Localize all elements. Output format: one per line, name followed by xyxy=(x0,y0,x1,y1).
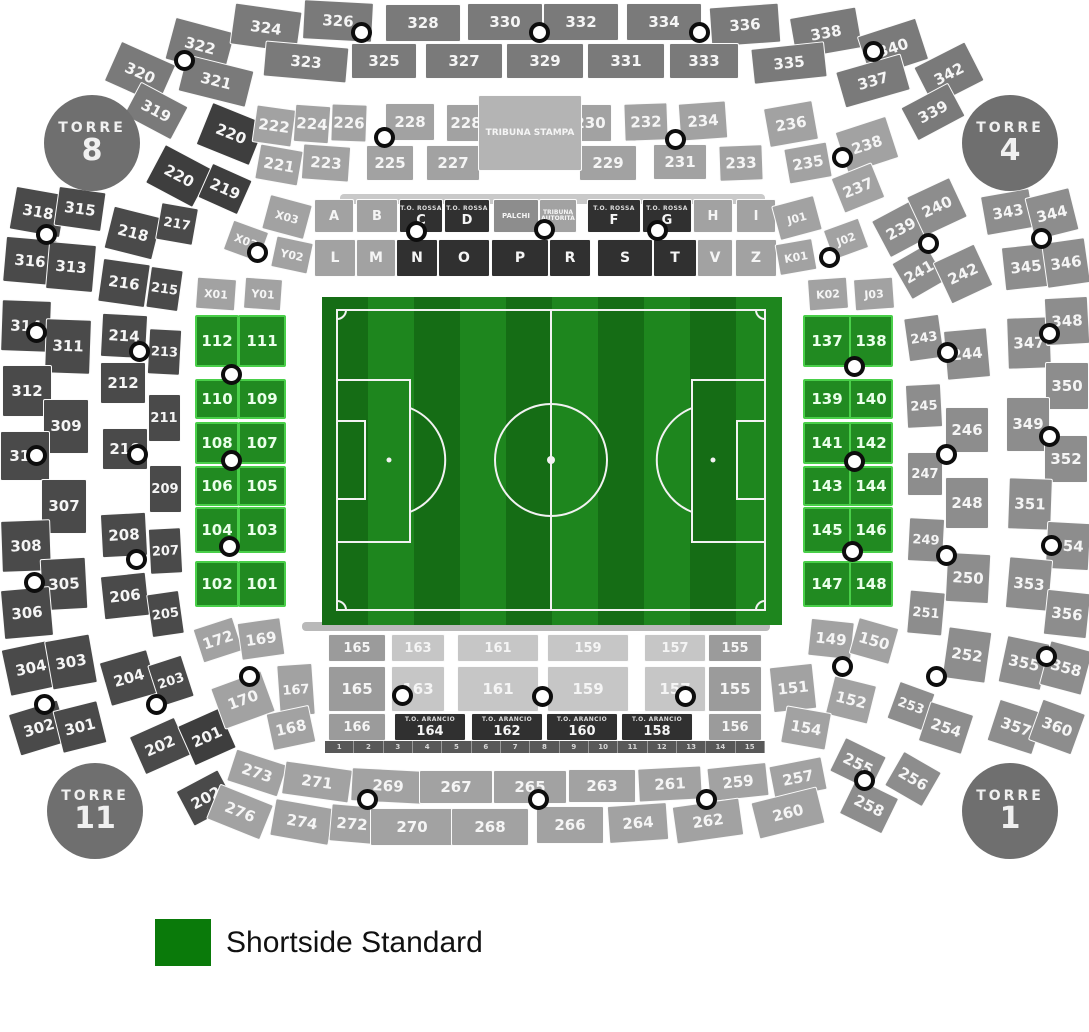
section-158[interactable]: T.O. ARANCIO158 xyxy=(621,713,693,741)
section-i[interactable]: I xyxy=(736,199,776,233)
section-229[interactable]: 229 xyxy=(579,145,637,181)
section-label: 306 xyxy=(11,604,44,622)
section-label: 242 xyxy=(946,261,981,288)
section-207[interactable]: 207 xyxy=(147,527,182,575)
section-155[interactable]: 155 xyxy=(708,666,762,712)
section-236[interactable]: 236 xyxy=(763,100,819,148)
section-label: 337 xyxy=(856,69,890,92)
section-252[interactable]: 252 xyxy=(942,626,993,684)
section-caption: T.O. ROSSA xyxy=(646,206,688,212)
section-m[interactable]: M xyxy=(356,239,396,277)
section-label: 103 xyxy=(246,523,277,538)
section-label: 311 xyxy=(52,338,84,354)
section-label: 332 xyxy=(565,15,596,30)
section-140[interactable]: 140 xyxy=(849,379,893,419)
section-152[interactable]: 152 xyxy=(825,675,877,724)
section-263[interactable]: 263 xyxy=(568,769,636,803)
section-palchi[interactable]: PALCHI xyxy=(493,199,539,233)
section-325[interactable]: 325 xyxy=(351,43,417,79)
section-label: 165 xyxy=(343,642,370,655)
section-label: 211 xyxy=(150,412,177,425)
section-label: 336 xyxy=(729,16,761,33)
section-label: 328 xyxy=(407,16,438,31)
section-y02[interactable]: Y02 xyxy=(270,235,314,274)
gate-number: 13 xyxy=(677,741,706,753)
section-169[interactable]: 169 xyxy=(237,617,286,661)
gate-marker xyxy=(529,22,550,43)
section-270[interactable]: 270 xyxy=(370,808,454,846)
tower-number: 11 xyxy=(74,804,116,834)
section-163[interactable]: 163 xyxy=(391,634,445,662)
section-301[interactable]: 301 xyxy=(52,700,107,754)
section-335[interactable]: 335 xyxy=(750,41,827,85)
section-tribuna-stampa[interactable]: TRIBUNA STAMPA xyxy=(478,95,582,171)
section-label: P xyxy=(515,251,525,265)
section-label: 352 xyxy=(1050,452,1081,467)
section-label: 148 xyxy=(855,577,886,592)
gate-marker xyxy=(1039,426,1060,447)
section-label: K01 xyxy=(783,250,808,265)
section-148[interactable]: 148 xyxy=(849,561,893,607)
section-caption: T.O. ARANCIO xyxy=(632,717,682,723)
section-109[interactable]: 109 xyxy=(238,379,286,419)
section-216[interactable]: 216 xyxy=(97,258,151,308)
gate-marker xyxy=(528,789,549,810)
gate-marker xyxy=(239,666,260,687)
gate-marker xyxy=(918,233,939,254)
section-label: 143 xyxy=(811,479,842,494)
section-303[interactable]: 303 xyxy=(44,633,98,690)
section-label: 331 xyxy=(610,54,641,69)
section-165[interactable]: 165 xyxy=(328,666,386,712)
section-label: 325 xyxy=(368,54,399,69)
section-caption: T.O. ROSSA xyxy=(446,206,488,212)
gate-marker xyxy=(844,356,865,377)
section-224[interactable]: 224 xyxy=(293,104,332,144)
section-164[interactable]: T.O. ARANCIO164 xyxy=(394,713,466,741)
section-label: D xyxy=(462,214,473,227)
section-label: 207 xyxy=(151,544,179,558)
section-label: 251 xyxy=(912,605,940,620)
gate-marker xyxy=(219,536,240,557)
section-157[interactable]: 157 xyxy=(644,666,706,712)
section-label: 141 xyxy=(811,436,842,451)
legend: Shortside Standard xyxy=(155,919,483,966)
section-label: 271 xyxy=(300,772,333,791)
section-h[interactable]: H xyxy=(693,199,733,233)
section-217[interactable]: 217 xyxy=(155,202,199,246)
gate-marker xyxy=(247,242,268,263)
section-label: 313 xyxy=(55,258,88,276)
section-label: H xyxy=(708,210,719,223)
tower-4: TORRE4 xyxy=(962,95,1058,191)
section-label: PALCHI xyxy=(502,213,530,220)
section-label: 243 xyxy=(910,330,939,347)
section-t[interactable]: T xyxy=(653,239,697,277)
section-154[interactable]: 154 xyxy=(780,705,832,750)
section-label: 233 xyxy=(725,155,757,171)
section-label: 276 xyxy=(223,799,258,825)
section-label: T xyxy=(670,251,680,265)
section-label: 356 xyxy=(1051,605,1084,623)
section-label: 235 xyxy=(791,153,824,173)
section-d[interactable]: T.O. ROSSAD xyxy=(444,199,490,233)
section-102[interactable]: 102 xyxy=(195,561,239,607)
section-label: 312 xyxy=(11,384,42,399)
section-label: 272 xyxy=(336,815,369,833)
gate-marker xyxy=(406,221,427,242)
section-139[interactable]: 139 xyxy=(803,379,851,419)
section-label: Z xyxy=(751,251,761,265)
section-a[interactable]: A xyxy=(314,199,354,233)
section-159[interactable]: 159 xyxy=(547,634,629,662)
section-351[interactable]: 351 xyxy=(1007,477,1053,531)
section-211[interactable]: 211 xyxy=(148,394,181,442)
section-label: 217 xyxy=(162,215,191,233)
gate-marker xyxy=(392,685,413,706)
section-label: 304 xyxy=(14,657,48,678)
section-221[interactable]: 221 xyxy=(254,143,304,186)
section-label: Y01 xyxy=(251,288,275,301)
section-k01[interactable]: K01 xyxy=(775,238,818,276)
section-161[interactable]: 161 xyxy=(457,634,539,662)
section-157[interactable]: 157 xyxy=(644,634,706,662)
gate-number: 9 xyxy=(560,741,589,753)
section-label: 220 xyxy=(162,162,197,190)
section-label: 302 xyxy=(22,716,56,739)
section-label: 224 xyxy=(296,115,328,132)
section-label: 353 xyxy=(1013,575,1046,593)
section-label: 157 xyxy=(661,642,688,655)
section-143[interactable]: 143 xyxy=(803,466,851,506)
gate-marker xyxy=(842,541,863,562)
section-235[interactable]: 235 xyxy=(783,141,833,184)
gate-marker xyxy=(1036,646,1057,667)
section-274[interactable]: 274 xyxy=(269,798,335,846)
section-k02[interactable]: K02 xyxy=(807,277,849,312)
section-label: 256 xyxy=(896,765,931,794)
section-label: 234 xyxy=(687,112,719,129)
section-label: 254 xyxy=(929,716,963,740)
section-160[interactable]: T.O. ARANCIO160 xyxy=(546,713,618,741)
section-label: 327 xyxy=(448,54,479,69)
section-105[interactable]: 105 xyxy=(238,466,286,506)
section-213[interactable]: 213 xyxy=(146,328,181,376)
section-212[interactable]: 212 xyxy=(100,362,146,404)
section-label: 155 xyxy=(721,642,748,655)
section-label: 253 xyxy=(896,695,926,716)
gate-marker xyxy=(936,444,957,465)
section-label: 345 xyxy=(1010,258,1043,276)
section-306[interactable]: 306 xyxy=(0,586,54,640)
section-label: K02 xyxy=(816,288,841,301)
section-label: 343 xyxy=(991,202,1024,222)
section-y01[interactable]: Y01 xyxy=(243,277,283,312)
gate-number: 12 xyxy=(648,741,677,753)
gate-number: 2 xyxy=(354,741,383,753)
section-label: 266 xyxy=(554,818,585,833)
section-r[interactable]: R xyxy=(549,239,591,277)
section-205[interactable]: 205 xyxy=(146,590,185,638)
section-label: 223 xyxy=(310,154,342,171)
section-label: 318 xyxy=(21,202,54,222)
section-323[interactable]: 323 xyxy=(263,40,350,83)
section-label: O xyxy=(458,251,470,265)
section-112[interactable]: 112 xyxy=(195,315,239,367)
section-237[interactable]: 237 xyxy=(830,162,885,214)
gate-number: 8 xyxy=(530,741,559,753)
section-label: 231 xyxy=(664,155,695,170)
section-225[interactable]: 225 xyxy=(366,145,414,181)
gate-number-strip: 123456789101112131415 xyxy=(325,741,765,753)
section-label: 330 xyxy=(489,15,520,30)
section-137[interactable]: 137 xyxy=(803,315,851,367)
gate-number: 11 xyxy=(618,741,647,753)
section-label: 326 xyxy=(322,13,354,30)
tower-8: TORRE8 xyxy=(44,95,140,191)
section-caption: T.O. ROSSA xyxy=(593,206,635,212)
section-label: J03 xyxy=(864,288,884,300)
section-b[interactable]: B xyxy=(356,199,398,233)
section-label: 216 xyxy=(107,273,140,292)
section-label: 245 xyxy=(910,399,938,413)
section-209[interactable]: 209 xyxy=(149,465,182,513)
section-222[interactable]: 222 xyxy=(252,104,297,147)
section-label: 202 xyxy=(143,733,178,759)
section-231[interactable]: 231 xyxy=(653,144,707,180)
section-248[interactable]: 248 xyxy=(945,477,989,529)
gate-number: 7 xyxy=(501,741,530,753)
section-360[interactable]: 360 xyxy=(1028,698,1086,755)
section-label: 308 xyxy=(10,538,42,554)
gate-marker xyxy=(26,445,47,466)
section-label: 351 xyxy=(1014,496,1046,512)
section-label: 109 xyxy=(246,392,277,407)
section-label: M xyxy=(369,251,383,265)
gate-marker xyxy=(863,41,884,62)
section-label: 154 xyxy=(789,718,822,738)
section-313[interactable]: 313 xyxy=(45,241,97,293)
section-label: 201 xyxy=(190,724,225,750)
section-149[interactable]: 149 xyxy=(807,618,855,660)
legend-label: Shortside Standard xyxy=(226,926,483,960)
section-261[interactable]: 261 xyxy=(637,765,703,802)
tower-number: 4 xyxy=(1000,136,1021,166)
section-106[interactable]: 106 xyxy=(195,466,239,506)
section-label: 248 xyxy=(951,496,982,511)
section-label: 238 xyxy=(850,133,884,157)
section-label: N xyxy=(411,251,423,265)
gate-marker xyxy=(534,219,555,240)
section-label: 168 xyxy=(274,717,308,738)
section-233[interactable]: 233 xyxy=(718,144,763,182)
section-111[interactable]: 111 xyxy=(238,315,286,367)
section-j01[interactable]: J01 xyxy=(771,195,823,241)
section-label: 138 xyxy=(855,334,886,349)
section-label: 321 xyxy=(199,70,233,92)
section-z[interactable]: Z xyxy=(735,239,777,277)
section-label: 309 xyxy=(50,419,81,434)
section-label: 252 xyxy=(950,645,983,664)
section-label: 315 xyxy=(63,199,96,218)
section-j03[interactable]: J03 xyxy=(853,277,895,312)
section-x01[interactable]: X01 xyxy=(195,277,237,312)
section-label: 226 xyxy=(333,115,365,131)
section-label: 151 xyxy=(777,679,810,697)
section-label: 161 xyxy=(484,642,511,655)
section-328[interactable]: 328 xyxy=(385,4,461,42)
section-label: 108 xyxy=(201,436,232,451)
section-label: 324 xyxy=(249,18,282,37)
section-101[interactable]: 101 xyxy=(238,561,286,607)
gate-marker xyxy=(221,450,242,471)
section-l[interactable]: L xyxy=(314,239,356,277)
section-label: L xyxy=(331,251,340,265)
section-266[interactable]: 266 xyxy=(536,806,604,844)
section-218[interactable]: 218 xyxy=(103,206,162,261)
section-label: 270 xyxy=(396,820,427,835)
section-150[interactable]: 150 xyxy=(849,617,900,665)
section-label: 301 xyxy=(63,716,97,738)
section-165[interactable]: 165 xyxy=(328,634,386,662)
section-caption: T.O. ARANCIO xyxy=(482,717,532,723)
section-label: 338 xyxy=(809,23,842,43)
section-label: 159 xyxy=(572,682,603,697)
section-label: 305 xyxy=(48,576,80,593)
section-label: 102 xyxy=(201,577,232,592)
tower-11: TORRE11 xyxy=(47,763,143,859)
section-356[interactable]: 356 xyxy=(1043,589,1089,639)
section-label: J02 xyxy=(835,231,857,248)
section-v[interactable]: V xyxy=(697,239,733,277)
section-333[interactable]: 333 xyxy=(669,43,739,79)
section-251[interactable]: 251 xyxy=(906,590,946,637)
section-271[interactable]: 271 xyxy=(281,760,353,803)
gate-marker xyxy=(24,572,45,593)
section-label: 145 xyxy=(811,523,842,538)
gate-number: 5 xyxy=(442,741,471,753)
section-155[interactable]: 155 xyxy=(708,634,762,662)
section-o[interactable]: O xyxy=(438,239,490,277)
section-label: X01 xyxy=(204,288,229,301)
gate-marker xyxy=(689,22,710,43)
section-350[interactable]: 350 xyxy=(1045,362,1089,410)
gate-marker xyxy=(374,127,395,148)
section-s[interactable]: S xyxy=(597,239,653,277)
section-168[interactable]: 168 xyxy=(266,705,317,751)
gate-marker xyxy=(832,656,853,677)
section-144[interactable]: 144 xyxy=(849,466,893,506)
section-331[interactable]: 331 xyxy=(587,43,665,79)
section-107[interactable]: 107 xyxy=(238,422,286,464)
section-label: 203 xyxy=(156,671,186,692)
section-327[interactable]: 327 xyxy=(425,43,503,79)
section-329[interactable]: 329 xyxy=(506,43,584,79)
section-label: 158 xyxy=(643,725,670,738)
gate-marker xyxy=(854,770,875,791)
section-label: 307 xyxy=(48,499,79,514)
section-232[interactable]: 232 xyxy=(623,102,668,142)
section-223[interactable]: 223 xyxy=(301,143,351,182)
section-label: 208 xyxy=(108,527,140,544)
tower-number: 8 xyxy=(82,136,103,166)
section-226[interactable]: 226 xyxy=(330,103,367,142)
section-n[interactable]: N xyxy=(396,239,438,277)
gate-marker xyxy=(127,444,148,465)
section-label: 110 xyxy=(201,392,232,407)
section-label: 335 xyxy=(773,54,806,72)
section-label: 152 xyxy=(834,689,868,711)
section-label: 333 xyxy=(688,54,719,69)
section-label: 260 xyxy=(771,802,805,824)
section-label: 268 xyxy=(474,820,505,835)
gate-number: 4 xyxy=(413,741,442,753)
section-215[interactable]: 215 xyxy=(145,266,184,312)
section-label: 264 xyxy=(622,814,654,831)
football-pitch xyxy=(322,297,782,625)
section-label: 257 xyxy=(781,768,815,789)
section-156[interactable]: 156 xyxy=(708,713,762,741)
section-110[interactable]: 110 xyxy=(195,379,239,419)
section-label: 205 xyxy=(151,606,180,623)
gate-marker xyxy=(675,686,696,707)
gate-number: 15 xyxy=(736,741,765,753)
section-264[interactable]: 264 xyxy=(607,802,670,844)
gate-marker xyxy=(1039,323,1060,344)
section-227[interactable]: 227 xyxy=(426,145,480,181)
section-label: 165 xyxy=(341,682,372,697)
section-f[interactable]: T.O. ROSSAF xyxy=(587,199,641,233)
section-label: 246 xyxy=(951,423,982,438)
section-label: 137 xyxy=(811,334,842,349)
section-label: V xyxy=(710,251,721,265)
section-label: 172 xyxy=(201,628,235,652)
section-242[interactable]: 242 xyxy=(932,243,993,304)
section-label: Y02 xyxy=(279,247,304,263)
section-103[interactable]: 103 xyxy=(238,507,286,553)
section-162[interactable]: T.O. ARANCIO162 xyxy=(471,713,543,741)
section-315[interactable]: 315 xyxy=(53,186,106,232)
section-label: 241 xyxy=(902,258,937,287)
section-147[interactable]: 147 xyxy=(803,561,851,607)
section-label: 346 xyxy=(1049,253,1082,272)
gate-marker xyxy=(174,50,195,71)
section-206[interactable]: 206 xyxy=(100,572,150,621)
gate-marker xyxy=(819,247,840,268)
section-245[interactable]: 245 xyxy=(905,383,943,429)
section-332[interactable]: 332 xyxy=(543,3,619,41)
section-267[interactable]: 267 xyxy=(419,770,493,804)
section-336[interactable]: 336 xyxy=(709,3,782,48)
section-label: A xyxy=(329,210,339,223)
section-label: 261 xyxy=(654,776,686,793)
section-label: 166 xyxy=(343,721,370,734)
section-label: 250 xyxy=(952,570,984,587)
section-166[interactable]: 166 xyxy=(328,713,386,741)
section-label: 150 xyxy=(857,629,891,652)
section-268[interactable]: 268 xyxy=(451,808,529,846)
section-label: TRIBUNA STAMPA xyxy=(486,129,575,138)
section-p[interactable]: P xyxy=(491,239,549,277)
section-label: 167 xyxy=(282,683,310,698)
section-161[interactable]: 161 xyxy=(457,666,539,712)
gate-marker xyxy=(36,224,57,245)
section-label: 160 xyxy=(568,725,595,738)
section-label: 219 xyxy=(208,176,243,202)
section-label: 149 xyxy=(815,630,848,648)
gate-marker xyxy=(1041,535,1062,556)
section-159[interactable]: 159 xyxy=(547,666,629,712)
